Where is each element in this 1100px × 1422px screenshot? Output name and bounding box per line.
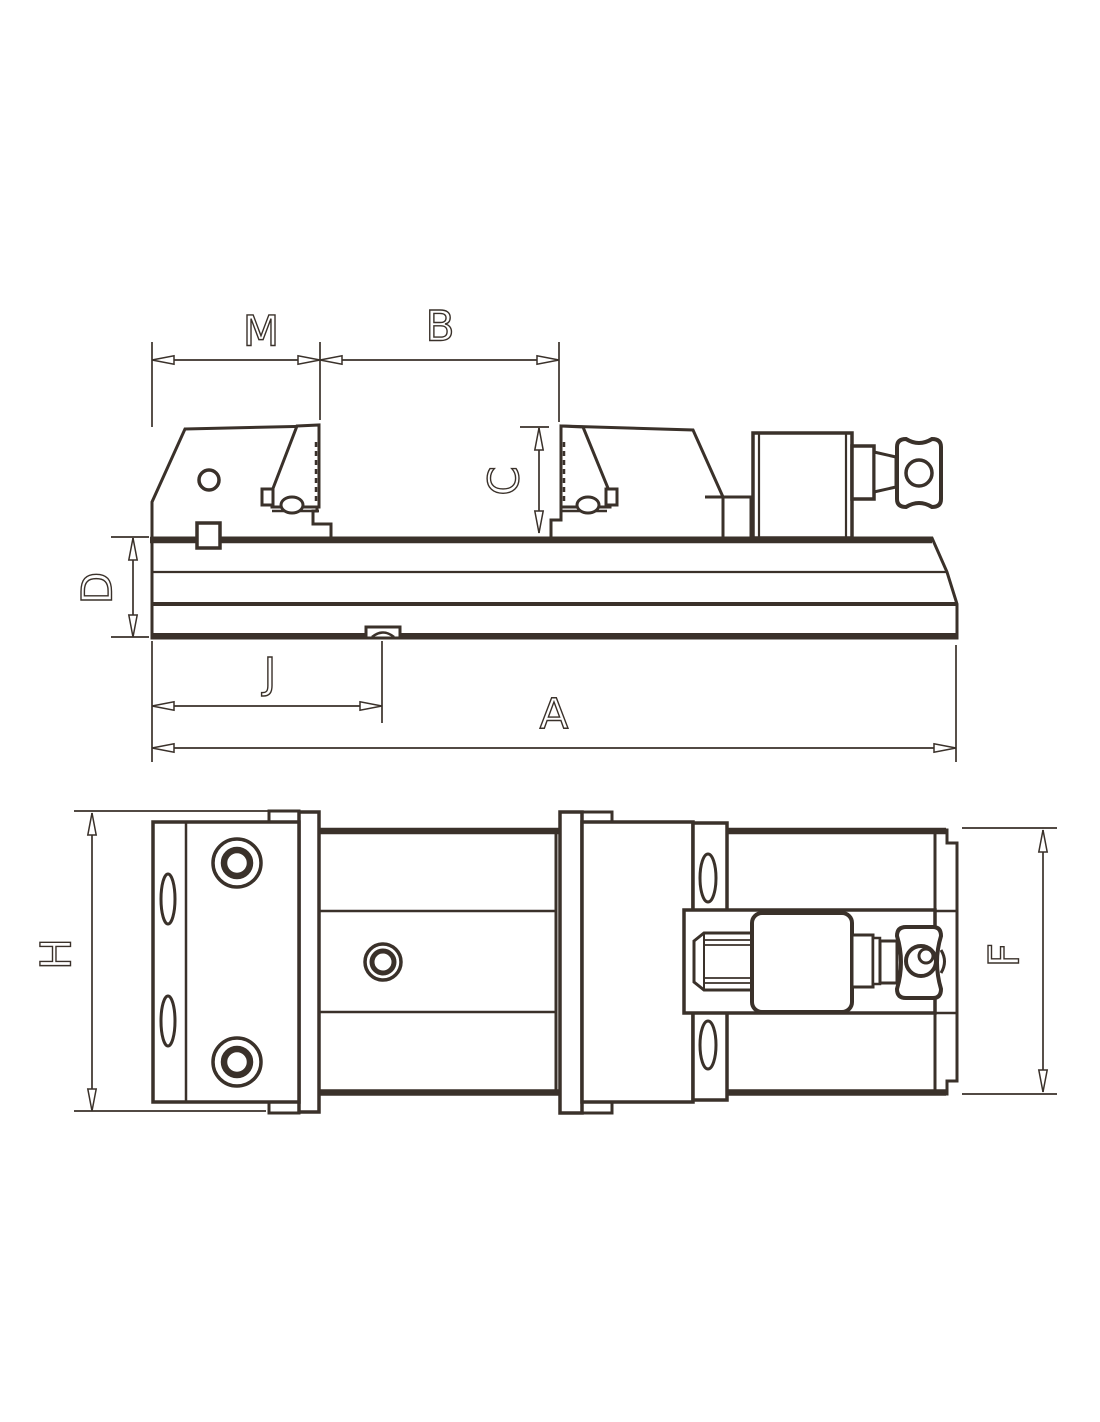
dim-label-H: H — [32, 938, 81, 970]
dimension-J-A: J A — [152, 641, 956, 762]
arrowhead — [360, 702, 382, 710]
arrowhead — [152, 702, 174, 710]
screw-drive-side — [705, 433, 941, 538]
dimension-C: C — [480, 427, 550, 533]
arrowhead — [129, 615, 137, 637]
arrowhead — [535, 511, 543, 533]
arrowhead — [320, 356, 342, 364]
handle-knob-hole-side — [906, 460, 932, 486]
dim-label-C: C — [480, 466, 529, 495]
rails-left-section — [318, 830, 556, 1094]
arrowhead — [537, 356, 559, 364]
dimension-D: D — [73, 537, 150, 637]
mount-hole-top-inner — [224, 850, 250, 876]
side-elevation-view: M B C D J — [73, 302, 958, 763]
arrowhead — [152, 356, 174, 364]
arrowhead — [1039, 1070, 1047, 1092]
vise-base-side — [152, 538, 957, 638]
fixed-jaw-clamp-block — [262, 489, 273, 505]
fixed-clamp-strip — [299, 812, 319, 1112]
dim-label-A: A — [540, 690, 569, 739]
screw-collar — [852, 446, 874, 499]
fixed-jaw-slot-top — [161, 874, 175, 924]
screw-neck — [874, 452, 896, 492]
drawing-canvas: M B C D J — [0, 0, 1100, 1422]
arrowhead — [88, 1089, 96, 1111]
dim-label-B: B — [426, 302, 455, 351]
lead-screw-threaded-end — [694, 933, 753, 990]
dimension-F: F — [962, 828, 1057, 1094]
movable-clamp-strip — [560, 812, 582, 1113]
dimension-M-B: M B — [152, 302, 559, 428]
fixed-jaw-plan — [153, 811, 319, 1113]
movable-jaw-clamp-block — [606, 489, 617, 505]
bed-center-hole-inner — [372, 951, 394, 973]
movable-jaw-slot-top — [700, 854, 716, 902]
movable-jaw — [551, 426, 723, 538]
fixed-jaw-clamp-screw — [281, 497, 303, 513]
screw-right-collar — [880, 941, 897, 983]
arrowhead — [88, 813, 96, 835]
movable-jaw-slot-bottom — [700, 1021, 716, 1069]
dim-label-M: M — [243, 307, 279, 356]
screw-block — [753, 433, 852, 538]
arrowhead — [152, 744, 174, 752]
arrowhead — [934, 744, 956, 752]
screw-drive-plan — [684, 910, 945, 1013]
arrowhead — [535, 428, 543, 450]
dim-label-F: F — [980, 943, 1029, 967]
dim-label-D: D — [73, 572, 122, 604]
base-outline — [152, 538, 957, 638]
top-plan-view: H F — [32, 811, 1058, 1113]
vise-technical-drawing: M B C D J — [0, 0, 1100, 1422]
work-stop-square — [197, 523, 220, 548]
handle-knob-ball-detail — [919, 949, 933, 963]
screw-right-segment — [852, 935, 873, 987]
fixed-jaw-hole — [199, 470, 219, 490]
base-bottom-key — [366, 627, 400, 638]
arrowhead — [298, 356, 320, 364]
arrowhead — [1039, 830, 1047, 852]
movable-jaw-plate-plan — [582, 822, 693, 1102]
mount-hole-bottom-inner — [224, 1049, 250, 1075]
fixed-jaw-slot-bottom — [161, 996, 175, 1046]
arrowhead — [129, 538, 137, 560]
movable-jaw-clamp-screw — [577, 497, 599, 513]
fixed-jaw — [152, 425, 331, 538]
dim-label-J: J — [261, 649, 276, 698]
screw-slider-block — [752, 913, 852, 1012]
